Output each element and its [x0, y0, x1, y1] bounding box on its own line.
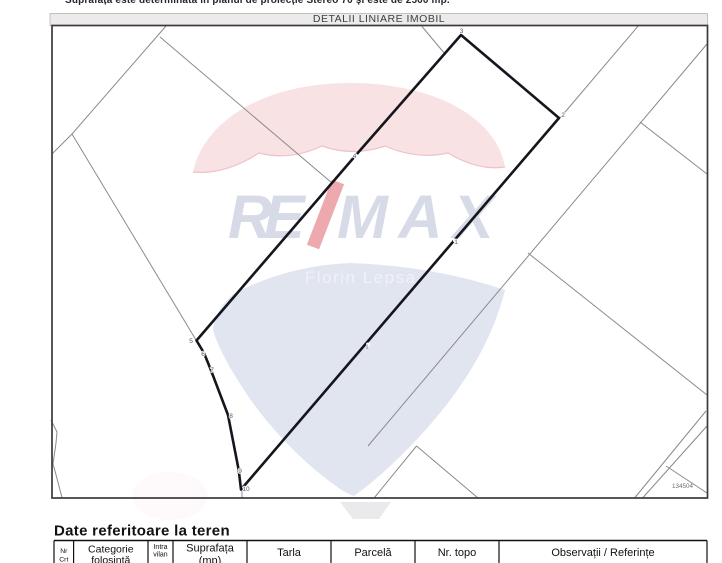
svg-text:DETALII LINIARE IMOBIL: DETALII LINIARE IMOBIL — [313, 13, 445, 25]
svg-text:Crt: Crt — [59, 557, 68, 563]
svg-text:Date referitoare la teren: Date referitoare la teren — [54, 523, 230, 540]
svg-text:Intra: Intra — [153, 544, 167, 551]
svg-text:Observații / Referințe: Observații / Referințe — [551, 547, 654, 559]
svg-text:vilan: vilan — [153, 552, 168, 559]
svg-text:4: 4 — [353, 153, 357, 160]
svg-text:10: 10 — [242, 486, 250, 493]
svg-text:7: 7 — [210, 367, 214, 374]
svg-text:134504: 134504 — [672, 483, 694, 490]
svg-text:1: 1 — [454, 239, 458, 246]
svg-text:Tarla: Tarla — [277, 547, 302, 559]
svg-text:Suprafața este determinată în: Suprafața este determinată în planul de … — [65, 0, 450, 6]
svg-text:3: 3 — [460, 28, 464, 35]
svg-text:2: 2 — [561, 112, 565, 119]
svg-text:Nr: Nr — [60, 548, 68, 555]
svg-text:9: 9 — [238, 468, 242, 475]
svg-text:Florin Lepsa: Florin Lepsa — [305, 268, 417, 287]
svg-text:Nr. topo: Nr. topo — [438, 547, 477, 559]
svg-text:Suprafața: Suprafața — [186, 543, 235, 555]
svg-text:Parcelă: Parcelă — [354, 547, 392, 559]
svg-text:folosință: folosință — [91, 555, 130, 563]
svg-text:RE: RE — [228, 183, 307, 251]
svg-text:1: 1 — [366, 345, 369, 351]
svg-text:8: 8 — [229, 413, 233, 420]
svg-text:6: 6 — [201, 351, 205, 358]
svg-text:5: 5 — [189, 338, 193, 345]
svg-text:(mp): (mp) — [199, 555, 222, 563]
svg-text:MAX: MAX — [337, 183, 504, 251]
